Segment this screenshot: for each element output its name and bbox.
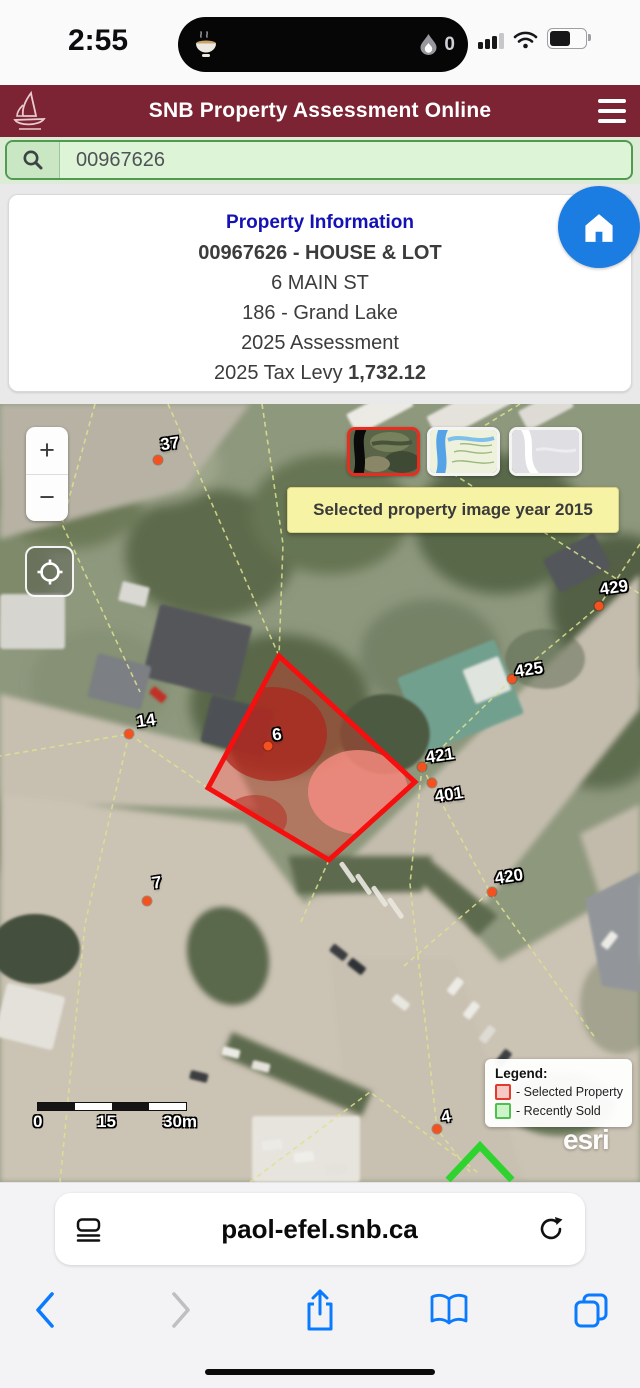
browser-toolbar: [0, 1275, 640, 1345]
app-header: SNB Property Assessment Online: [0, 85, 640, 139]
map-marker-label-37[interactable]: 37: [159, 433, 181, 455]
tax-levy-label: 2025 Tax Levy: [214, 362, 348, 384]
legend-label-1: - Recently Sold: [516, 1104, 601, 1118]
map-legend: Legend: - Selected Property- Recently So…: [485, 1059, 632, 1127]
zoom-control: + −: [26, 427, 68, 521]
property-address: 6 MAIN ST: [9, 268, 631, 298]
page-settings-icon[interactable]: [75, 1216, 102, 1243]
tabs-icon: [572, 1292, 610, 1328]
address-bar[interactable]: paol-efel.snb.ca: [55, 1193, 585, 1265]
battery-icon: [547, 28, 587, 49]
streak-flame-icon: [420, 34, 437, 55]
scale-label-0: 0: [33, 1112, 42, 1132]
home-indicator[interactable]: [205, 1369, 435, 1375]
open-book-icon: [428, 1293, 470, 1327]
back-button[interactable]: [10, 1275, 80, 1345]
menu-button[interactable]: [598, 99, 626, 123]
map-marker-dot-7[interactable]: [143, 897, 152, 906]
tabs-button[interactable]: [556, 1275, 626, 1345]
tax-levy-line: 2025 Tax Levy 1,732.12: [9, 358, 631, 388]
map-marker-dot-429[interactable]: [595, 602, 604, 611]
dynamic-island: 0: [178, 17, 468, 72]
property-information-card: Property Information 00967626 - HOUSE & …: [8, 194, 632, 392]
search-submit-button[interactable]: [7, 142, 60, 178]
search-input[interactable]: 00967626: [60, 142, 631, 178]
forward-chevron-icon: [169, 1291, 193, 1329]
assessment-line: 2025 Assessment: [9, 328, 631, 358]
property-id-line: 00967626 - HOUSE & LOT: [9, 238, 631, 268]
legend-title: Legend:: [495, 1066, 624, 1081]
scale-label-15: 15: [97, 1112, 116, 1132]
page-title: SNB Property Assessment Online: [0, 99, 640, 123]
map-marker-dot-37[interactable]: [154, 456, 163, 465]
zoom-out-button[interactable]: −: [26, 475, 68, 522]
map-marker-dot-420[interactable]: [488, 888, 497, 897]
streak-count: 0: [444, 34, 455, 56]
locate-me-button[interactable]: [25, 546, 74, 597]
legend-item-1: - Recently Sold: [495, 1103, 624, 1119]
back-chevron-icon: [33, 1291, 57, 1329]
legend-item-0: - Selected Property: [495, 1084, 624, 1100]
zoom-in-button[interactable]: +: [26, 427, 68, 475]
url-text[interactable]: paol-efel.snb.ca: [221, 1214, 418, 1245]
basemap-blank-thumbnail[interactable]: [509, 427, 582, 476]
system-status-icons: [478, 28, 587, 49]
blank-thumbnail-image: [512, 430, 579, 473]
search-strip: 00967626: [0, 137, 640, 184]
map-marker-label-421[interactable]: 421: [425, 744, 456, 768]
browser-chrome: paol-efel.snb.ca: [0, 1182, 640, 1388]
legend-swatch-1: [495, 1103, 511, 1119]
map-marker-label-429[interactable]: 429: [599, 576, 630, 600]
cellular-signal-icon: [478, 32, 504, 49]
legend-swatch-0: [495, 1084, 511, 1100]
status-bar: 2:55 0: [0, 0, 640, 85]
map-marker-label-420[interactable]: 420: [494, 865, 525, 889]
esri-attribution: esri: [563, 1124, 609, 1156]
map-marker-label-401[interactable]: 401: [434, 783, 465, 807]
map-viewport[interactable]: 3742942514642140142074 + −: [0, 404, 640, 1182]
map-marker-dot-14[interactable]: [125, 730, 134, 739]
search-icon: [22, 149, 44, 171]
wifi-icon: [513, 31, 538, 49]
share-icon: [303, 1288, 337, 1332]
basemap-satellite-thumbnail[interactable]: [347, 427, 420, 476]
bookmarks-button[interactable]: [414, 1275, 484, 1345]
map-marker-dot-4[interactable]: [433, 1125, 442, 1134]
map-marker-label-425[interactable]: 425: [514, 658, 545, 682]
map-marker-label-14[interactable]: 14: [135, 710, 157, 732]
crosshair-icon: [36, 558, 64, 586]
map-scale-bar: 0 15 30m: [37, 1102, 187, 1111]
tax-levy-value: 1,732.12: [348, 362, 426, 384]
legend-items: - Selected Property- Recently Sold: [495, 1084, 624, 1119]
reload-icon[interactable]: [537, 1215, 565, 1243]
basemap-topographic-thumbnail[interactable]: [427, 427, 500, 476]
topographic-thumbnail-image: [430, 430, 497, 473]
search-bar[interactable]: 00967626: [5, 140, 633, 180]
forward-button[interactable]: [146, 1275, 216, 1345]
image-year-tooltip: Selected property image year 2015: [287, 487, 619, 533]
card-title: Property Information: [9, 208, 631, 238]
share-button[interactable]: [285, 1275, 355, 1345]
island-activity: 0: [420, 34, 455, 56]
scale-bar-segments: [37, 1102, 187, 1111]
home-icon: [580, 209, 618, 245]
legend-label-0: - Selected Property: [516, 1085, 623, 1099]
satellite-thumbnail-image: [350, 430, 417, 473]
map-marker-dot-421[interactable]: [418, 763, 427, 772]
home-button[interactable]: [558, 186, 640, 268]
scale-label-30m: 30m: [163, 1112, 197, 1132]
property-card-zone: Property Information 00967626 - HOUSE & …: [0, 184, 640, 404]
property-region: 186 - Grand Lake: [9, 298, 631, 328]
iphone-screen: 2:55 0: [0, 0, 640, 1388]
clock-time: 2:55: [58, 24, 138, 58]
food-bowl-icon: [191, 30, 221, 60]
map-marker-dot-6[interactable]: [264, 742, 273, 751]
